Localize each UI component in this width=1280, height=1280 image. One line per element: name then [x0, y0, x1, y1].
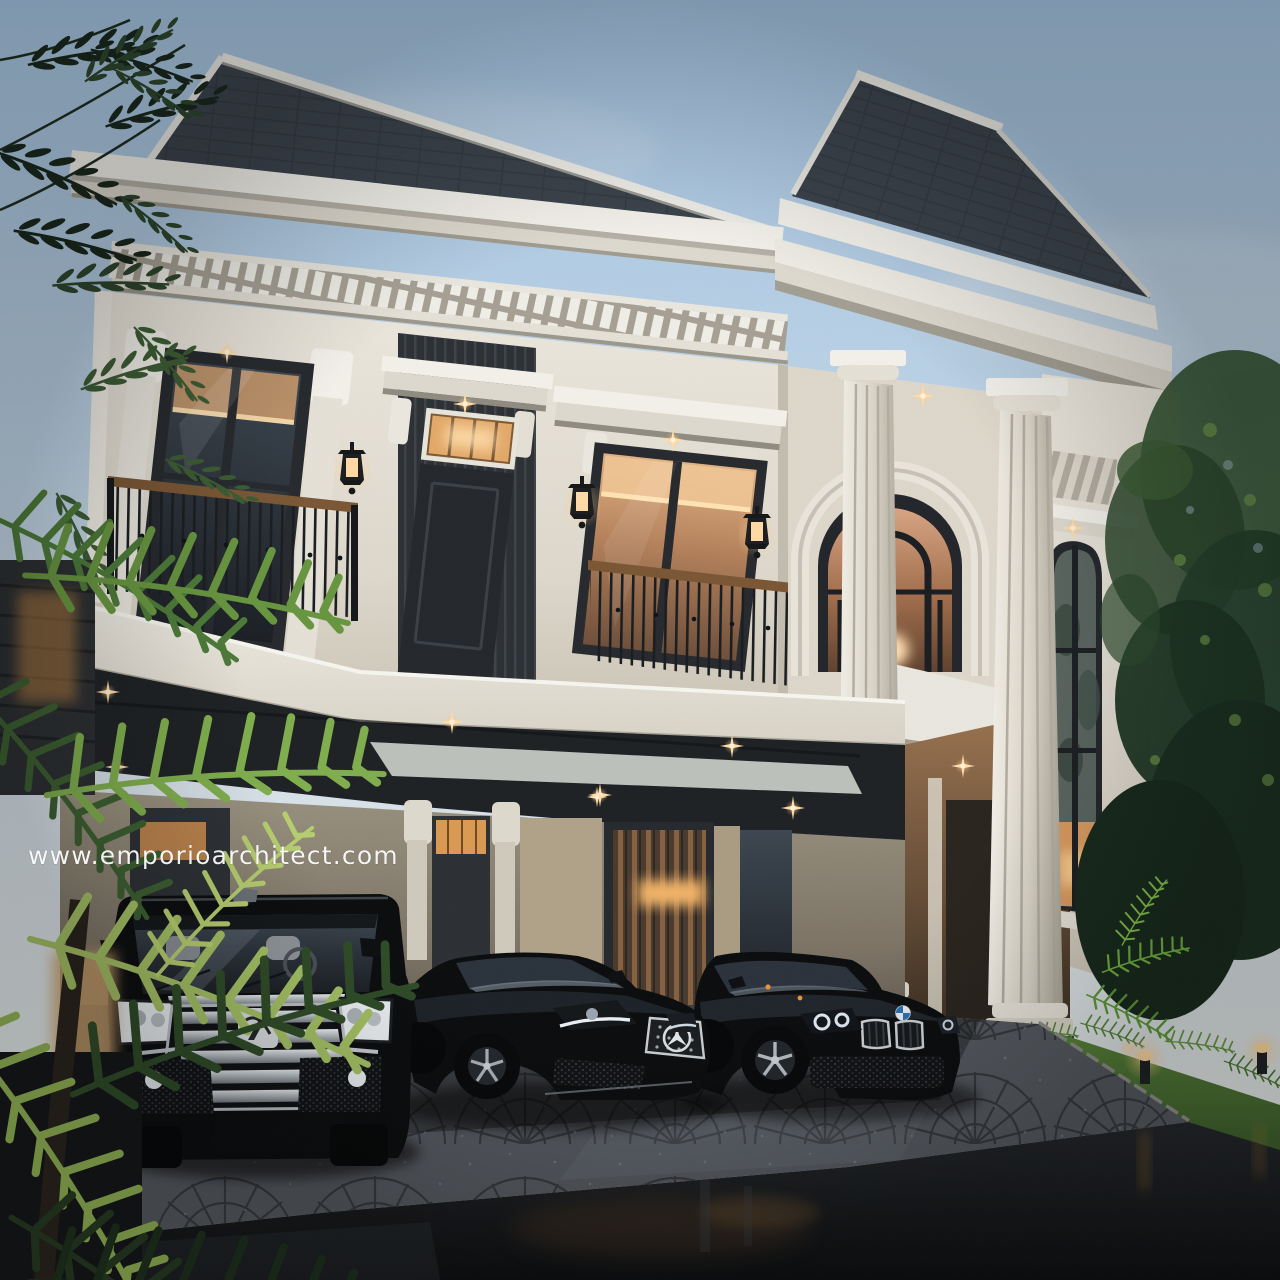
watermark-text: www.emporioarchitect.com	[28, 841, 399, 870]
vignette	[0, 0, 1280, 1280]
render-canvas: www.emporioarchitect.com	[0, 0, 1280, 1280]
